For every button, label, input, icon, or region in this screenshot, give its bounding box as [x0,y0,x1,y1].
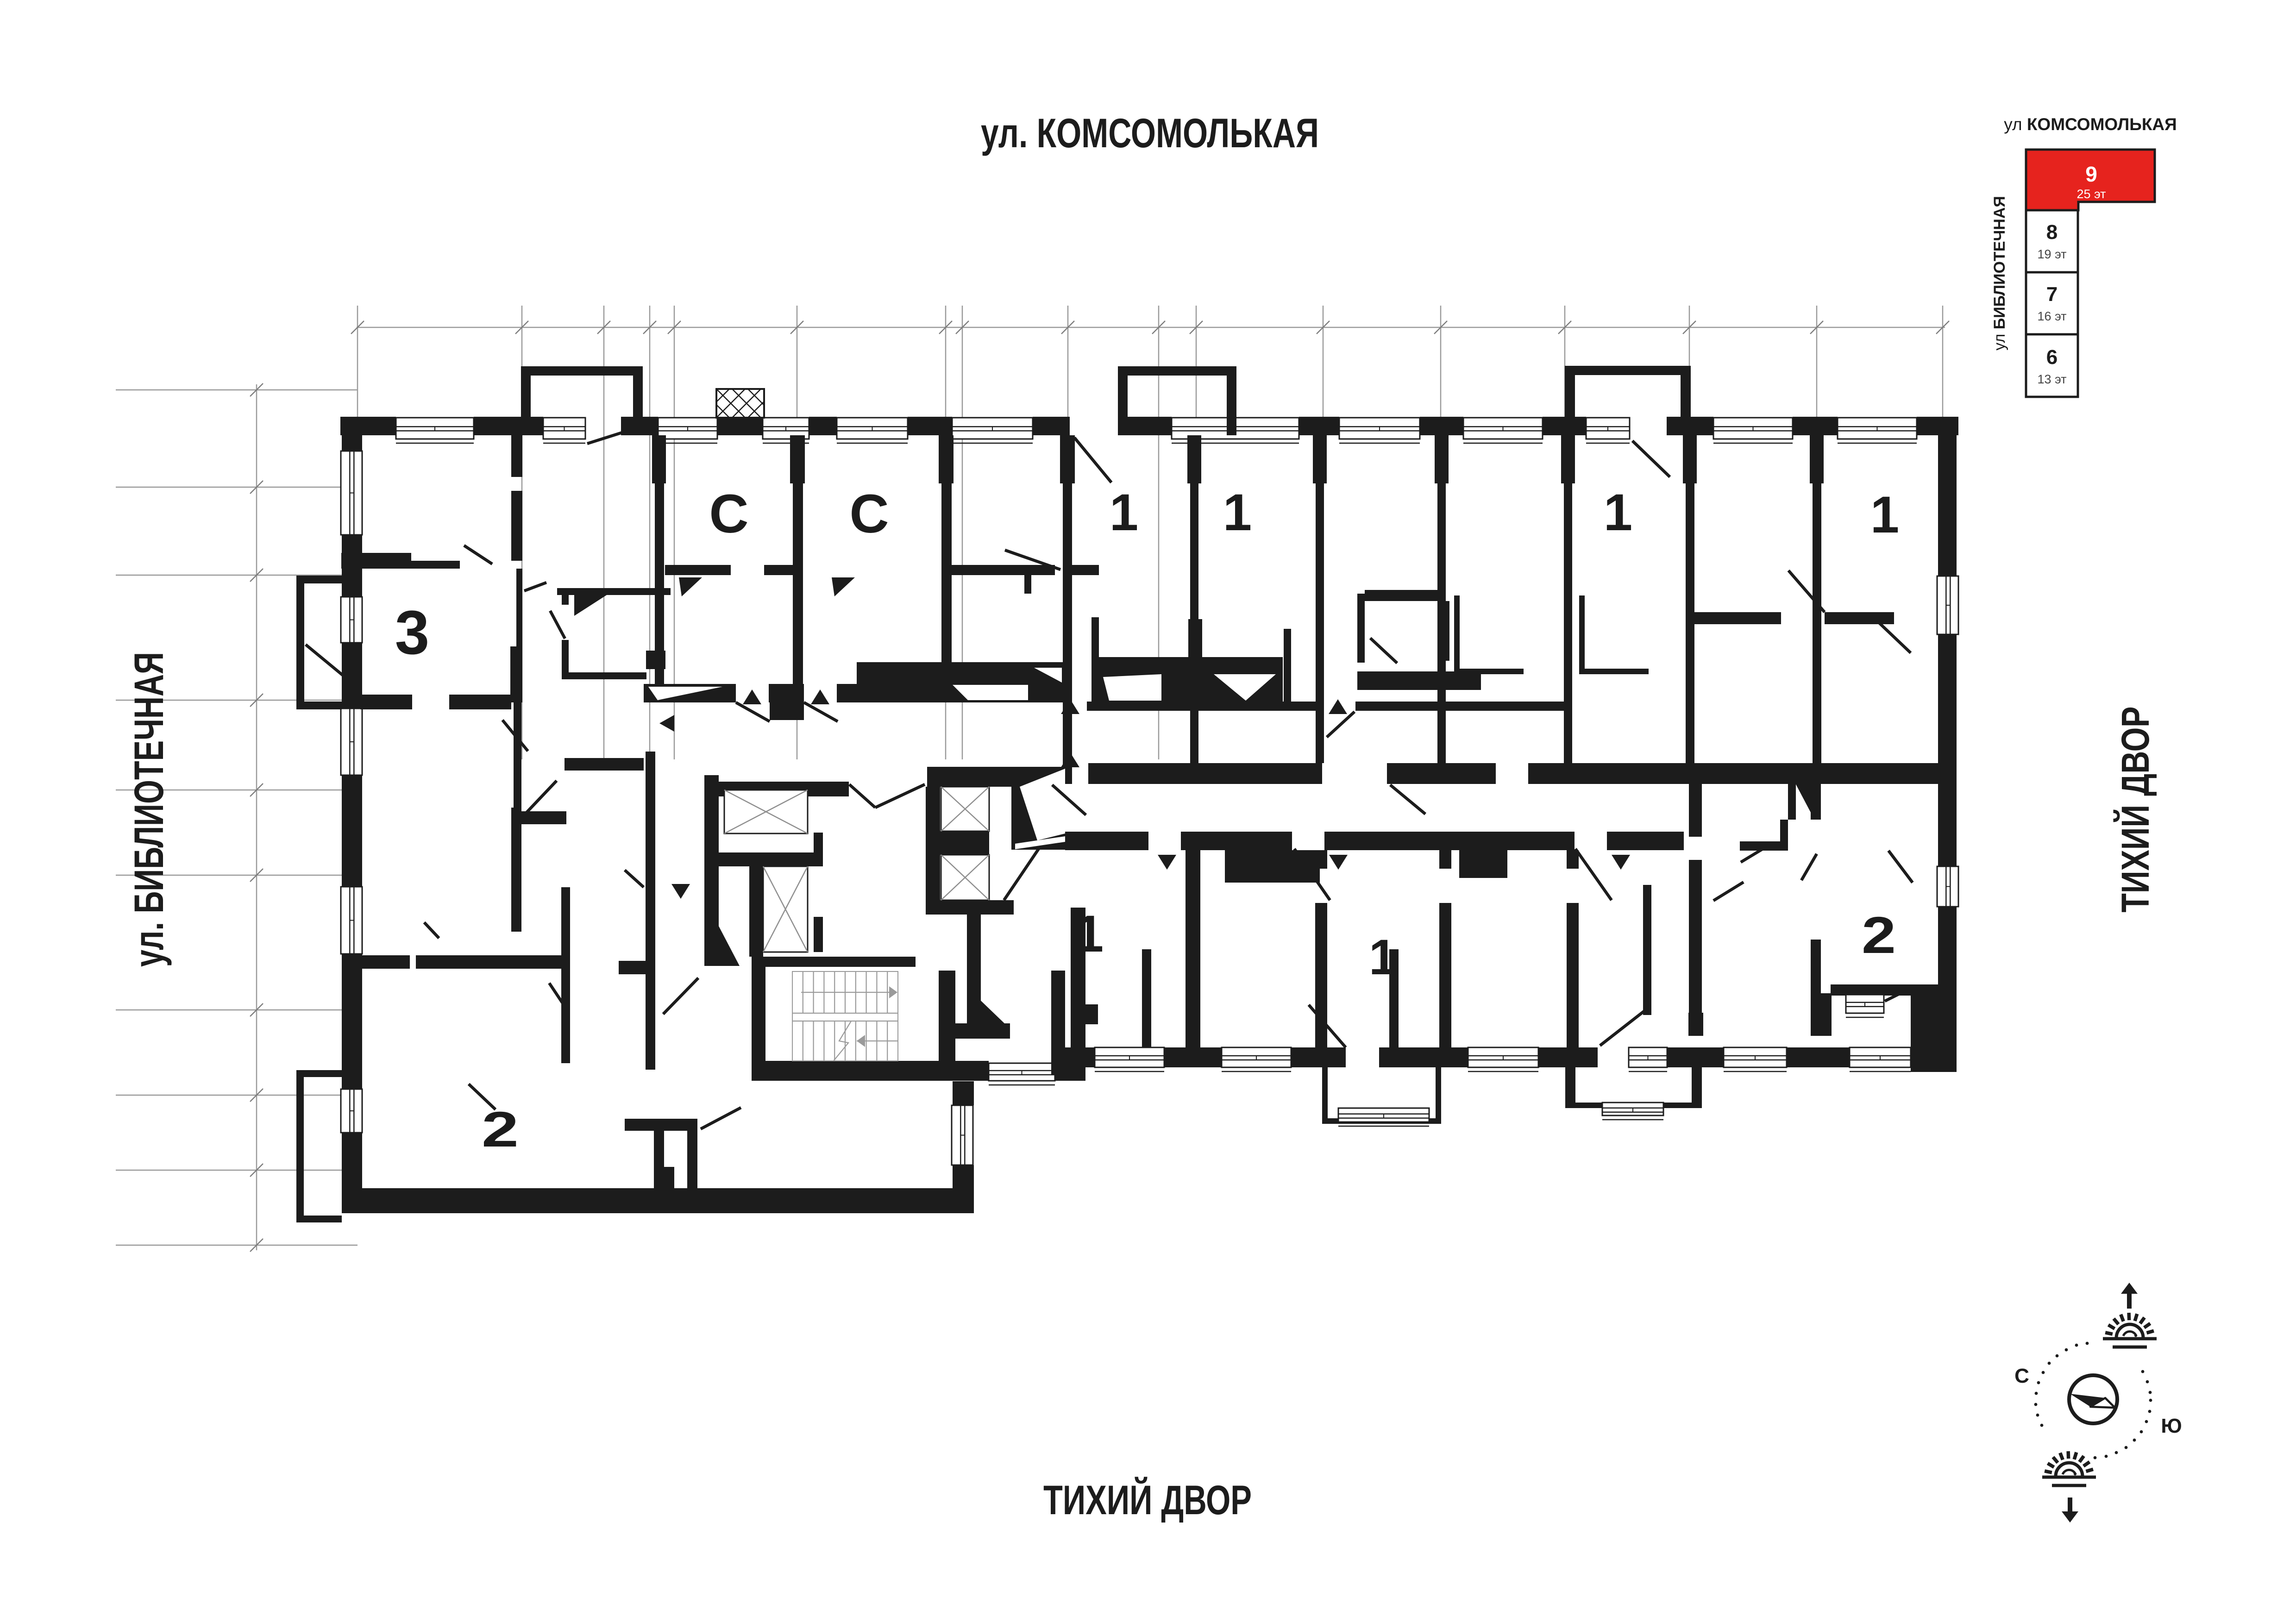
svg-text:1: 1 [1223,483,1252,541]
svg-text:1: 1 [1604,483,1632,541]
svg-text:Ю: Ю [2161,1415,2182,1437]
svg-text:ТИХИЙ ДВОР: ТИХИЙ ДВОР [1043,1477,1252,1523]
svg-text:ул. БИБЛИОТЕЧНАЯ: ул. БИБЛИОТЕЧНАЯ [125,652,172,967]
svg-text:6: 6 [2046,346,2058,369]
svg-text:1: 1 [1110,483,1138,541]
svg-text:1: 1 [1870,486,1899,544]
svg-text:1: 1 [1075,905,1104,963]
svg-text:16 эт: 16 эт [2037,309,2066,323]
svg-text:25 эт: 25 эт [2076,187,2106,201]
svg-text:ул. КОМСОМОЛЬКАЯ: ул. КОМСОМОЛЬКАЯ [981,110,1319,156]
svg-text:ул БИБЛИОТЕЧНАЯ: ул БИБЛИОТЕЧНАЯ [1991,196,2008,351]
svg-text:С: С [2014,1365,2029,1387]
svg-text:2: 2 [1862,906,1896,964]
svg-text:1: 1 [1369,929,1397,985]
svg-text:ТИХИЙ ДВОР: ТИХИЙ ДВОР [2114,707,2157,913]
svg-text:7: 7 [2046,283,2058,306]
svg-text:13 эт: 13 эт [2037,372,2066,386]
svg-text:С: С [849,483,889,545]
svg-text:19 эт: 19 эт [2037,247,2066,261]
svg-text:9: 9 [2085,162,2097,186]
svg-text:2: 2 [482,1101,519,1157]
svg-text:3: 3 [395,598,430,667]
svg-text:8: 8 [2046,221,2058,244]
svg-text:ул КОМСОМОЛЬКАЯ: ул КОМСОМОЛЬКАЯ [2004,115,2177,134]
svg-text:С: С [709,483,748,545]
